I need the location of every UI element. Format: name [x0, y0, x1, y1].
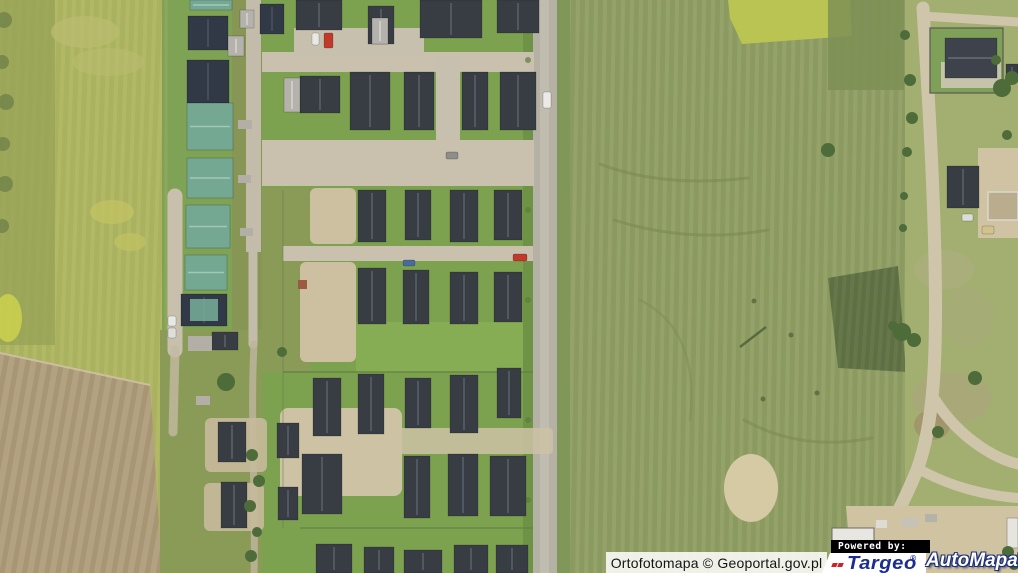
- ground-patch: [114, 233, 146, 251]
- tree: [906, 112, 918, 124]
- tree: [991, 55, 1001, 65]
- tree: [900, 30, 910, 40]
- targeo-logo-text: Targeo: [847, 553, 917, 573]
- ground-patch: [72, 48, 144, 76]
- tree: [789, 333, 794, 338]
- car: [543, 92, 551, 108]
- tree: [761, 397, 766, 402]
- tree: [907, 333, 921, 347]
- rect: [436, 56, 460, 140]
- tree: [244, 500, 256, 512]
- plowed-strip: [828, 266, 906, 372]
- tree: [525, 297, 531, 303]
- tree: [899, 224, 907, 232]
- path: [173, 350, 175, 432]
- car: [446, 152, 458, 159]
- estate-road-lower: [283, 246, 533, 261]
- tree: [904, 74, 916, 86]
- targeo-mark-icon: [832, 563, 845, 567]
- tree: [525, 57, 531, 63]
- rect: [356, 322, 533, 372]
- automapa-logo-text: AutoMapa: [926, 549, 1018, 573]
- automapa-logo[interactable]: AutoMapa ®: [926, 549, 1018, 573]
- tree: [245, 550, 257, 562]
- tree: [525, 207, 531, 213]
- rect: [240, 228, 253, 236]
- tree: [246, 449, 258, 461]
- tree: [815, 391, 820, 396]
- car: [312, 33, 319, 45]
- rect: [540, 0, 549, 573]
- rect: [238, 175, 251, 183]
- rect: [902, 518, 918, 527]
- red-shed: [298, 280, 307, 289]
- rect: [190, 299, 218, 321]
- left-field-dark-band: [0, 0, 55, 345]
- car: [168, 328, 176, 338]
- rect: [925, 514, 937, 522]
- aerial-imagery: [0, 0, 1018, 573]
- estate-road-middle: [262, 140, 534, 186]
- tree: [1002, 130, 1012, 140]
- rect: [196, 396, 210, 405]
- ground-patch: [942, 288, 994, 348]
- tree: [253, 475, 265, 487]
- car: [403, 260, 415, 266]
- rect: [300, 262, 356, 362]
- map-attribution: Ortofotomapa © Geoportal.gov.pl: [606, 552, 827, 573]
- rect: [876, 520, 887, 528]
- tree: [902, 147, 912, 157]
- dirt-road-branch-top: [922, 16, 1018, 22]
- ground-patch: [51, 16, 119, 48]
- powered-by-label: Powered by:: [831, 540, 930, 553]
- ground-patch: [914, 250, 974, 290]
- tree: [252, 527, 262, 537]
- car: [324, 33, 333, 48]
- plowed-field: [0, 352, 162, 573]
- rect: [828, 0, 904, 90]
- tree: [752, 299, 757, 304]
- attribution-text: Ortofotomapa © Geoportal.gov.pl: [611, 555, 823, 571]
- ground-patch: [90, 200, 134, 224]
- vacant-lot-sand: [310, 188, 356, 244]
- car: [513, 254, 527, 261]
- tree: [900, 192, 908, 200]
- tree: [968, 371, 982, 385]
- rect: [188, 336, 212, 351]
- car: [962, 214, 973, 221]
- tree: [888, 321, 898, 331]
- road-verge: [557, 0, 570, 573]
- tree: [277, 347, 287, 357]
- foundation: [988, 192, 1018, 220]
- field-sand-blob: [724, 454, 778, 522]
- car: [982, 226, 994, 234]
- car: [168, 316, 176, 326]
- rect: [238, 120, 252, 129]
- tree: [932, 426, 944, 438]
- targeo-logo[interactable]: Targeo ®: [822, 553, 926, 573]
- rect: [1007, 518, 1018, 548]
- tree: [525, 417, 531, 423]
- tree: [217, 373, 235, 391]
- tree: [821, 143, 835, 157]
- map-viewport[interactable]: Ortofotomapa © Geoportal.gov.pl Powered …: [0, 0, 1018, 573]
